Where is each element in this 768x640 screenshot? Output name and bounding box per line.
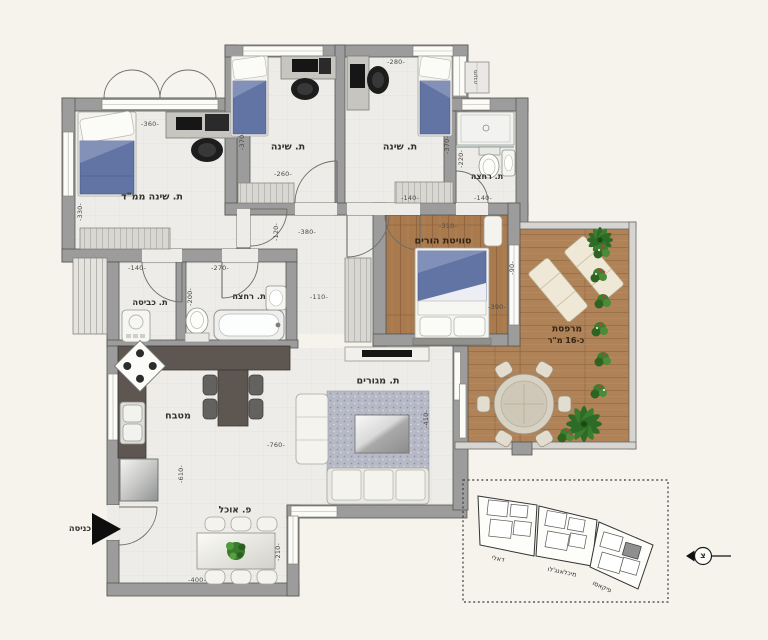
tv-console: [345, 347, 429, 361]
bedroom1-bed: [231, 56, 268, 136]
floor-plan-drawing: [0, 0, 768, 640]
site-key-plan: [463, 480, 668, 602]
floor-plan-page: ת. שינה ממ"ד ת. שינה ת. שינה ת. רחצה סוו…: [0, 0, 768, 640]
mamad-window-shutters: [104, 70, 216, 98]
bedroom2-bed: [418, 56, 452, 136]
north-arrow-icon: [686, 548, 731, 565]
condenser-unit: [465, 62, 489, 93]
exterior-louver: [73, 258, 107, 334]
dining-set: [197, 517, 277, 584]
suite-bed: [413, 248, 491, 345]
laundry-machine: [122, 310, 150, 342]
kitchen-sink: [120, 402, 145, 444]
mamad-bed: [78, 111, 136, 196]
suite-bench: [484, 216, 502, 246]
coffee-table: [355, 415, 409, 453]
fridge: [120, 459, 158, 501]
